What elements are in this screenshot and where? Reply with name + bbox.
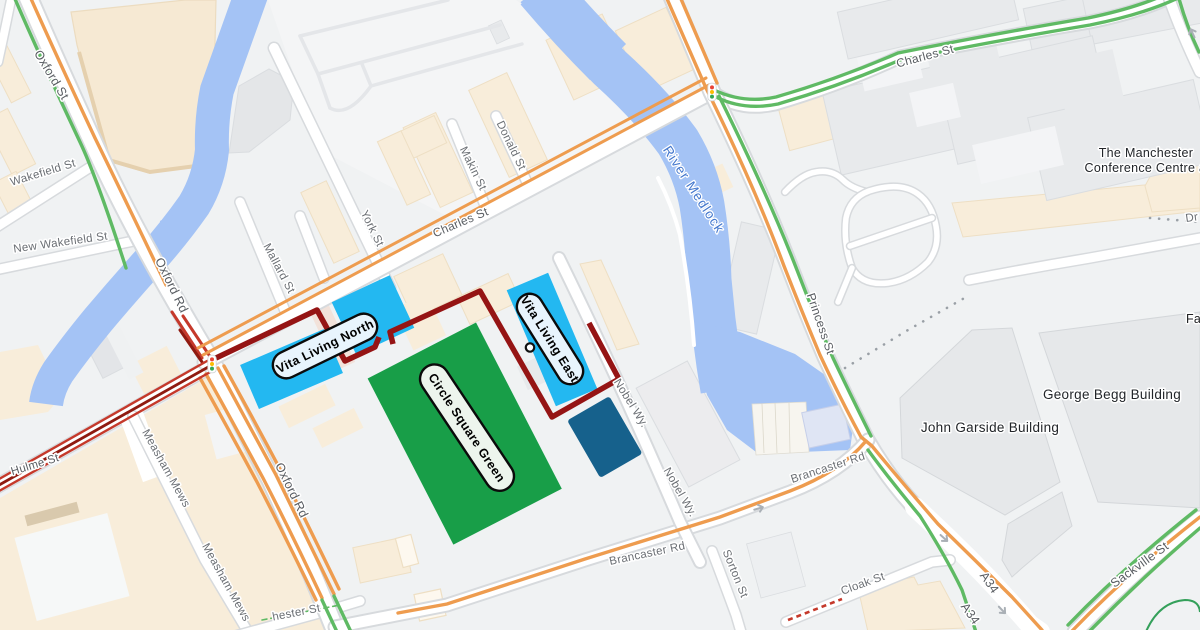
svg-text:Conference Centre an: Conference Centre an [1085, 161, 1200, 175]
svg-text:The Manchester: The Manchester [1099, 146, 1194, 160]
svg-text:John Garside Building: John Garside Building [921, 420, 1059, 435]
svg-text:Dr: Dr [1185, 211, 1199, 225]
svg-text:George Begg Building: George Begg Building [1043, 387, 1181, 402]
svg-text:Fa: Fa [1186, 312, 1200, 326]
